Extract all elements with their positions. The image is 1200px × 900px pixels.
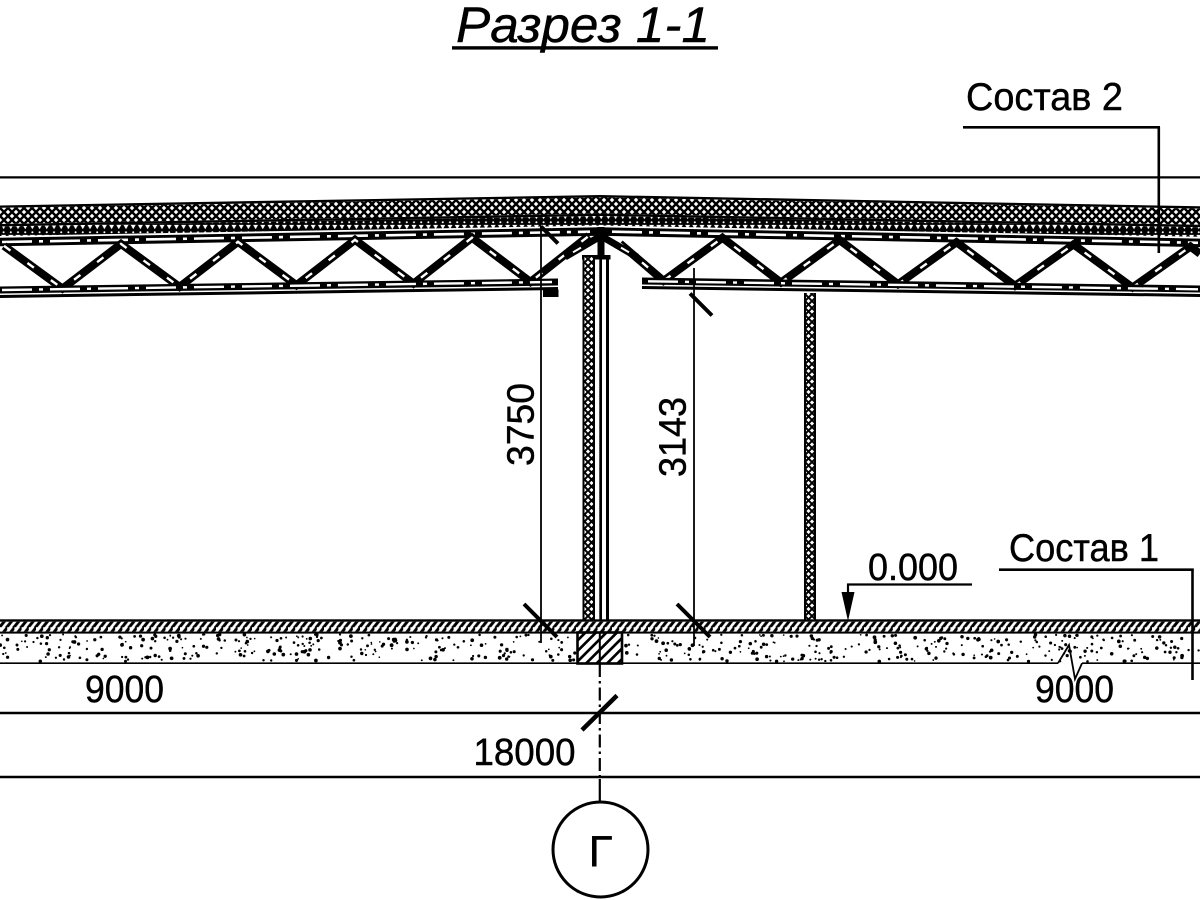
svg-text:9000: 9000 <box>85 669 164 711</box>
svg-text:0.000: 0.000 <box>868 547 958 589</box>
svg-text:3750: 3750 <box>501 383 543 466</box>
svg-text:Состав 1: Состав 1 <box>1009 527 1159 570</box>
svg-text:Состав 2: Состав 2 <box>966 76 1123 119</box>
svg-text:Г: Г <box>589 827 613 876</box>
svg-text:9000: 9000 <box>1035 669 1114 711</box>
svg-text:3143: 3143 <box>653 397 695 477</box>
svg-text:18000: 18000 <box>474 732 576 774</box>
svg-text:Разрез 1-1: Разрез 1-1 <box>456 0 710 53</box>
